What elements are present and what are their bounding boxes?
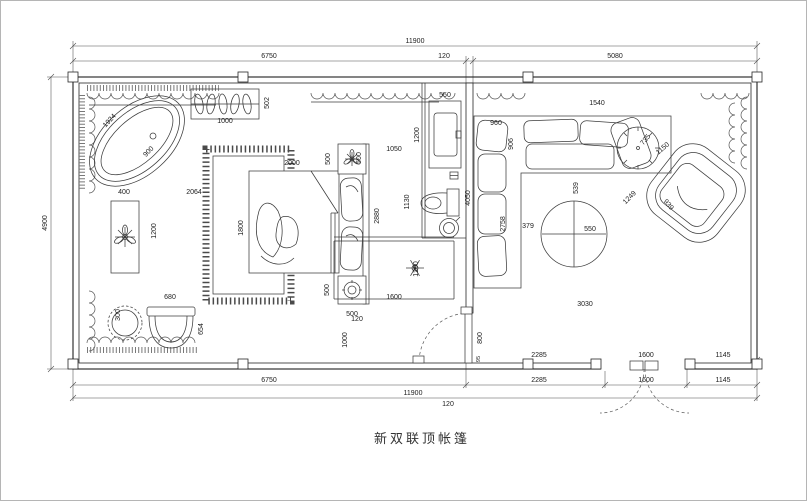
dim-label-total-bottom: 11900	[404, 390, 423, 397]
dim-label-console-gap: 2064	[186, 189, 202, 196]
dim-label-bottom-b1: 2285	[531, 377, 547, 384]
dim-label-shower-curb: 120	[351, 316, 363, 323]
dim-label-table-radius: 550	[584, 226, 596, 233]
dim-label-stool-radius: 300	[115, 309, 122, 321]
pillow	[340, 177, 363, 221]
door-swing-arc	[600, 369, 644, 413]
dim-label-bottom-b0: 6750	[261, 377, 277, 384]
dim-label-sofa-depth: 906	[508, 138, 515, 150]
dim-label-bottom-a1: 2285	[531, 352, 547, 359]
dim-label-shower-width: 1600	[386, 294, 402, 301]
door-leaf	[630, 361, 643, 370]
dim-label-sofa-width: 1540	[589, 100, 605, 107]
dim-label-nightstand: 500	[356, 152, 363, 164]
dim-label-rack-depth: 502	[264, 97, 271, 109]
dim-label-door-jamb: 95	[476, 356, 482, 362]
dim-label-vanity-width: 550	[439, 92, 451, 99]
door-leaf	[465, 313, 472, 363]
dim-label-bed-length: 1800	[238, 220, 245, 236]
dim-label-top-right: 5080	[607, 53, 623, 60]
dim-label-console-width: 400	[118, 189, 130, 196]
dim-label-bottom-b2: 1600	[638, 377, 654, 384]
dim-label-top-wall: 120	[438, 53, 450, 60]
dim-label-console-length: 1200	[151, 223, 158, 239]
dim-label-top-left: 6750	[261, 53, 277, 60]
dim-label-shower-depth: 1200	[413, 261, 420, 277]
dim-label-bed-width: 2000	[284, 160, 300, 167]
round-dining-table	[541, 201, 607, 267]
dim-label-bath-gap: 1050	[386, 146, 402, 153]
dim-label-nightstand: 500	[324, 284, 331, 296]
dim-label-left-height: 4900	[42, 215, 49, 231]
dim-label-bottom-b3: 1145	[715, 377, 730, 384]
dim-label-rack-width: 1000	[217, 118, 233, 125]
dim-label-chair-width: 680	[164, 294, 176, 301]
exterior-walls	[68, 72, 762, 371]
door-leaf	[645, 361, 658, 370]
dim-label-door-width: 800	[477, 332, 484, 344]
dim-label-room-width: 3030	[577, 301, 593, 308]
floorplan-canvas: 11900 6750 120 5080 4900 2285 1600 1145 …	[0, 0, 807, 501]
drawing-title: 新双联顶帐篷	[374, 431, 470, 447]
door-swing-arc	[645, 369, 689, 413]
dim-label-bottom-a2: 1600	[638, 352, 654, 359]
dim-label-partition-length: 4050	[465, 190, 472, 206]
dim-label-shower-offset: 1000	[342, 332, 349, 348]
floorplan-drawing: 11900 6750 120 5080 4900 2285 1600 1145 …	[1, 1, 807, 501]
dim-label-table-gap-v: 539	[573, 182, 580, 194]
dim-label-table-gap-h: 379	[522, 223, 534, 230]
dim-label-nightstand: 500	[325, 153, 332, 165]
dim-label-sofa-length: 2758	[500, 216, 507, 232]
pillow	[340, 227, 363, 271]
dim-label-bottom-wall: 120	[442, 401, 454, 408]
dim-label-chair-depth: 654	[198, 323, 205, 335]
dim-label-sofa-corner: 960	[490, 120, 502, 127]
nightstand-bottom	[338, 276, 366, 304]
dim-label-bed-clearance: 2880	[374, 208, 381, 224]
dim-label-bottom-a3: 1145	[715, 352, 730, 359]
dim-label-vanity-length: 1200	[414, 127, 421, 143]
dim-label-total-top: 11900	[406, 38, 425, 45]
dim-label-toilet-zone: 1130	[404, 194, 411, 209]
